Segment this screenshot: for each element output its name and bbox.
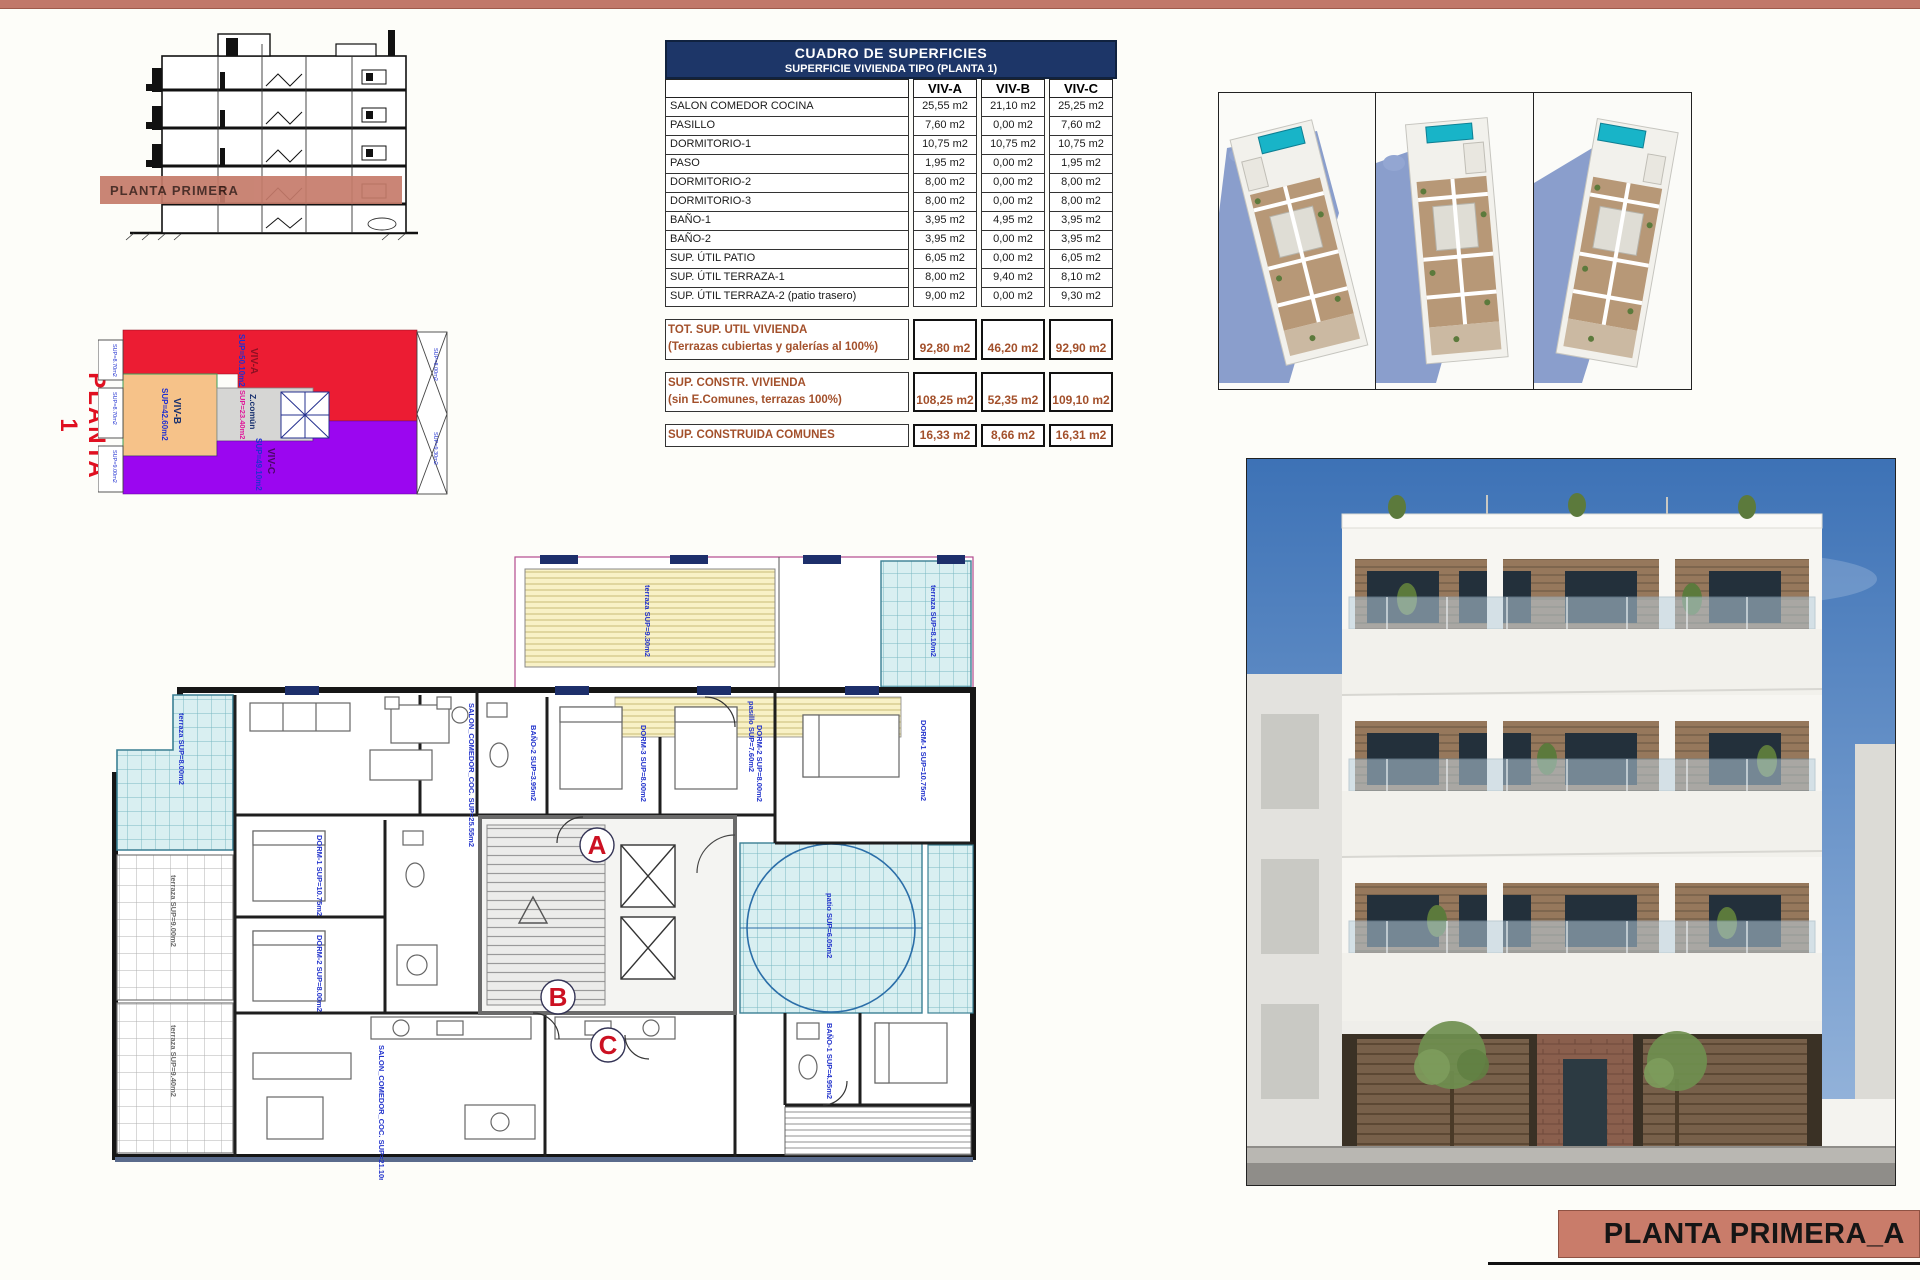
summary-val-c: 109,10 m2 [1049, 372, 1113, 413]
table-row: SUP. ÚTIL TERRAZA-1 8,00 m2 9,40 m2 8,10… [665, 269, 1117, 288]
summary-label: SUP. CONSTRUIDA COMUNES [665, 424, 909, 447]
row-val-b: 0,00 m2 [981, 231, 1045, 250]
building-section-drawing: PLANTA PRIMERA [100, 28, 422, 242]
row-val-a: 6,05 m2 [913, 250, 977, 269]
row-val-c: 6,05 m2 [1049, 250, 1113, 269]
edge-label-left-2: SUP=8.70m2 [111, 392, 117, 425]
row-val-c: 25,25 m2 [1049, 98, 1113, 117]
row-val-c: 9,30 m2 [1049, 288, 1113, 307]
room-label: DORM-2 SUP=8.00m2 [315, 935, 324, 1012]
floor-plan: A B C SALON_COMEDOR_COC. SUP=25.55m2 BAÑ… [85, 545, 985, 1180]
row-label: SUP. ÚTIL TERRAZA-1 [665, 269, 909, 288]
label-zcomun: Z.común [248, 394, 258, 429]
plan-sheet: PLANTA PRIMERA PLANTA 1 [0, 0, 1920, 1280]
row-val-b: 9,40 m2 [981, 269, 1045, 288]
colhead-empty [665, 79, 909, 98]
table-row: DORMITORIO-1 10,75 m2 10,75 m2 10,75 m2 [665, 136, 1117, 155]
row-val-b: 0,00 m2 [981, 288, 1045, 307]
table-title: CUADRO DE SUPERFICIES [667, 45, 1115, 61]
table-row: SUP. ÚTIL PATIO 6,05 m2 0,00 m2 6,05 m2 [665, 250, 1117, 269]
row-val-b: 4,95 m2 [981, 212, 1045, 231]
row-label: DORMITORIO-1 [665, 136, 909, 155]
plan-terrace-bottomright [785, 1107, 971, 1155]
table-column-headers: VIV-A VIV-B VIV-C [665, 79, 1117, 98]
plan-terrace-topleft [117, 695, 233, 850]
row-val-c: 7,60 m2 [1049, 117, 1113, 136]
label-viv-a-sup: SUP=50.10m2 [237, 334, 246, 387]
summary-val-c: 92,90 m2 [1049, 319, 1113, 360]
row-label: SALON COMEDOR COCINA [665, 98, 909, 117]
room-label: pasillo SUP=7.60m2 [747, 701, 756, 772]
planta1-zones-svg: VIV-A SUP=50.10m2 VIV-B SUP=42.60m2 Z.co… [98, 326, 450, 506]
zone-viv-b [123, 374, 217, 456]
row-val-b: 0,00 m2 [981, 250, 1045, 269]
row-val-c: 8,00 m2 [1049, 193, 1113, 212]
row-val-a: 3,95 m2 [913, 231, 977, 250]
edge-label-right-1: SUP=8.00m2 [432, 348, 438, 381]
label-zcomun-sup: SUP=23.40m2 [238, 390, 247, 439]
table-row: DORMITORIO-3 8,00 m2 0,00 m2 8,00 m2 [665, 193, 1117, 212]
room-label: SALON_COMEDOR_COC. SUP=21.10m2 [377, 1045, 386, 1180]
row-val-b: 0,00 m2 [981, 174, 1045, 193]
unit-marker-a: A [588, 830, 607, 860]
row-label: SUP. ÚTIL TERRAZA-2 (patio trasero) [665, 288, 909, 307]
table-row: BAÑO-2 3,95 m2 0,00 m2 3,95 m2 [665, 231, 1117, 250]
room-label: terraza SUP=8.10m2 [929, 585, 938, 657]
row-val-b: 21,10 m2 [981, 98, 1045, 117]
edge-label-left-3: SUP=9.00m2 [111, 450, 117, 483]
top-accent-bar [0, 0, 1920, 9]
row-label: PASO [665, 155, 909, 174]
aerial-render-2 [1376, 92, 1534, 390]
room-label: SALON_COMEDOR_COC. SUP=25.55m2 [467, 703, 476, 847]
row-val-a: 10,75 m2 [913, 136, 977, 155]
planta1-zone-diagram: PLANTA 1 [50, 322, 490, 514]
row-val-c: 8,00 m2 [1049, 174, 1113, 193]
planta-primera-band: PLANTA PRIMERA [100, 176, 402, 204]
aerial-renders-strip [1218, 92, 1692, 390]
title-underline [1488, 1262, 1920, 1265]
edge-label-left-1: SUP=8.70m2 [111, 344, 117, 377]
room-label: terraza SUP=9.30m2 [643, 585, 652, 657]
row-val-a: 25,55 m2 [913, 98, 977, 117]
room-label: terraza SUP=9.40m2 [169, 1025, 178, 1097]
row-label: DORMITORIO-2 [665, 174, 909, 193]
row-label: BAÑO-1 [665, 212, 909, 231]
colhead-viv-b: VIV-B [981, 79, 1045, 98]
title-block: PLANTA PRIMERA_A [1558, 1210, 1920, 1258]
table-row: PASILLO 7,60 m2 0,00 m2 7,60 m2 [665, 117, 1117, 136]
summary-label: SUP. CONSTR. VIVIENDA(sin E.Comunes, ter… [665, 372, 909, 413]
colhead-viv-c: VIV-C [1049, 79, 1113, 98]
summary-row-comunes: SUP. CONSTRUIDA COMUNES 16,33 m2 8,66 m2… [665, 424, 1117, 447]
row-val-b: 0,00 m2 [981, 117, 1045, 136]
summary-val-a: 92,80 m2 [913, 319, 977, 360]
label-viv-b: VIV-B [171, 398, 182, 424]
row-val-b: 0,00 m2 [981, 193, 1045, 212]
surface-table: CUADRO DE SUPERFICIES SUPERFICIE VIVIEND… [665, 40, 1117, 447]
room-label: DORM-1 SUP=10.75m2 [315, 835, 324, 916]
row-label: SUP. ÚTIL PATIO [665, 250, 909, 269]
table-row: SALON COMEDOR COCINA 25,55 m2 21,10 m2 2… [665, 98, 1117, 117]
summary-val-b: 8,66 m2 [981, 424, 1045, 447]
plan-top-terrace-strip [515, 555, 973, 690]
colhead-viv-a: VIV-A [913, 79, 977, 98]
row-val-a: 8,00 m2 [913, 174, 977, 193]
surface-table-header: CUADRO DE SUPERFICIES SUPERFICIE VIVIEND… [665, 40, 1117, 79]
room-label: patio SUP=6.05m2 [825, 893, 834, 958]
room-label: DORM-3 SUP=8.00m2 [639, 725, 648, 802]
summary-val-b: 46,20 m2 [981, 319, 1045, 360]
aerial-render-3 [1534, 92, 1692, 390]
summary-val-c: 16,31 m2 [1049, 424, 1113, 447]
row-val-c: 1,95 m2 [1049, 155, 1113, 174]
label-viv-b-sup: SUP=42.60m2 [160, 388, 169, 441]
summary-row-total-util: TOT. SUP. UTIL VIVIENDA(Terrazas cubiert… [665, 319, 1117, 360]
table-row: DORMITORIO-2 8,00 m2 0,00 m2 8,00 m2 [665, 174, 1117, 193]
row-val-b: 0,00 m2 [981, 155, 1045, 174]
table-row: SUP. ÚTIL TERRAZA-2 (patio trasero) 9,00… [665, 288, 1117, 307]
row-val-c: 10,75 m2 [1049, 136, 1113, 155]
label-viv-a: VIV-A [248, 348, 259, 374]
facade-render [1246, 458, 1896, 1186]
row-label: BAÑO-2 [665, 231, 909, 250]
room-label: terraza SUP=9.00m2 [169, 875, 178, 947]
room-label: terraza SUP=8.00m2 [177, 713, 186, 785]
summary-row-construida: SUP. CONSTR. VIVIENDA(sin E.Comunes, ter… [665, 372, 1117, 413]
diagram-stair-box [281, 392, 329, 438]
summary-val-a: 108,25 m2 [913, 372, 977, 413]
row-val-c: 3,95 m2 [1049, 212, 1113, 231]
row-val-b: 10,75 m2 [981, 136, 1045, 155]
row-val-c: 3,95 m2 [1049, 231, 1113, 250]
diagram-right-strip [417, 332, 447, 494]
planta-primera-band-label: PLANTA PRIMERA [100, 183, 239, 198]
row-val-a: 3,95 m2 [913, 212, 977, 231]
row-val-a: 7,60 m2 [913, 117, 977, 136]
table-row: BAÑO-1 3,95 m2 4,95 m2 3,95 m2 [665, 212, 1117, 231]
unit-marker-b: B [549, 982, 568, 1012]
room-label: DORM-1 SUP=10.75m2 [919, 720, 928, 801]
row-val-a: 8,00 m2 [913, 193, 977, 212]
table-row: PASO 1,95 m2 0,00 m2 1,95 m2 [665, 155, 1117, 174]
room-label: BAÑO-1 SUP=4.95m2 [825, 1023, 834, 1099]
section-line-art [100, 28, 422, 242]
label-viv-c: VIV-C [265, 448, 276, 474]
diagram-left-boxes [98, 340, 123, 492]
row-label: DORMITORIO-3 [665, 193, 909, 212]
summary-val-a: 16,33 m2 [913, 424, 977, 447]
room-label: BAÑO-2 SUP=3.95m2 [529, 725, 538, 801]
row-val-a: 8,00 m2 [913, 269, 977, 288]
row-val-a: 9,00 m2 [913, 288, 977, 307]
aerial-render-1 [1218, 92, 1376, 390]
sheet-title: PLANTA PRIMERA_A [1604, 1218, 1919, 1251]
table-subtitle: SUPERFICIE VIVIENDA TIPO (PLANTA 1) [667, 63, 1115, 75]
edge-label-right-2: SUP=9.30m2 [432, 432, 438, 465]
row-label: PASILLO [665, 117, 909, 136]
summary-label: TOT. SUP. UTIL VIVIENDA(Terrazas cubiert… [665, 319, 909, 360]
label-viv-c-sup: SUP=49.10m2 [254, 438, 263, 491]
plan-terrace-right [928, 845, 973, 1013]
unit-marker-c: C [599, 1030, 618, 1060]
row-val-c: 8,10 m2 [1049, 269, 1113, 288]
row-val-a: 1,95 m2 [913, 155, 977, 174]
summary-val-b: 52,35 m2 [981, 372, 1045, 413]
